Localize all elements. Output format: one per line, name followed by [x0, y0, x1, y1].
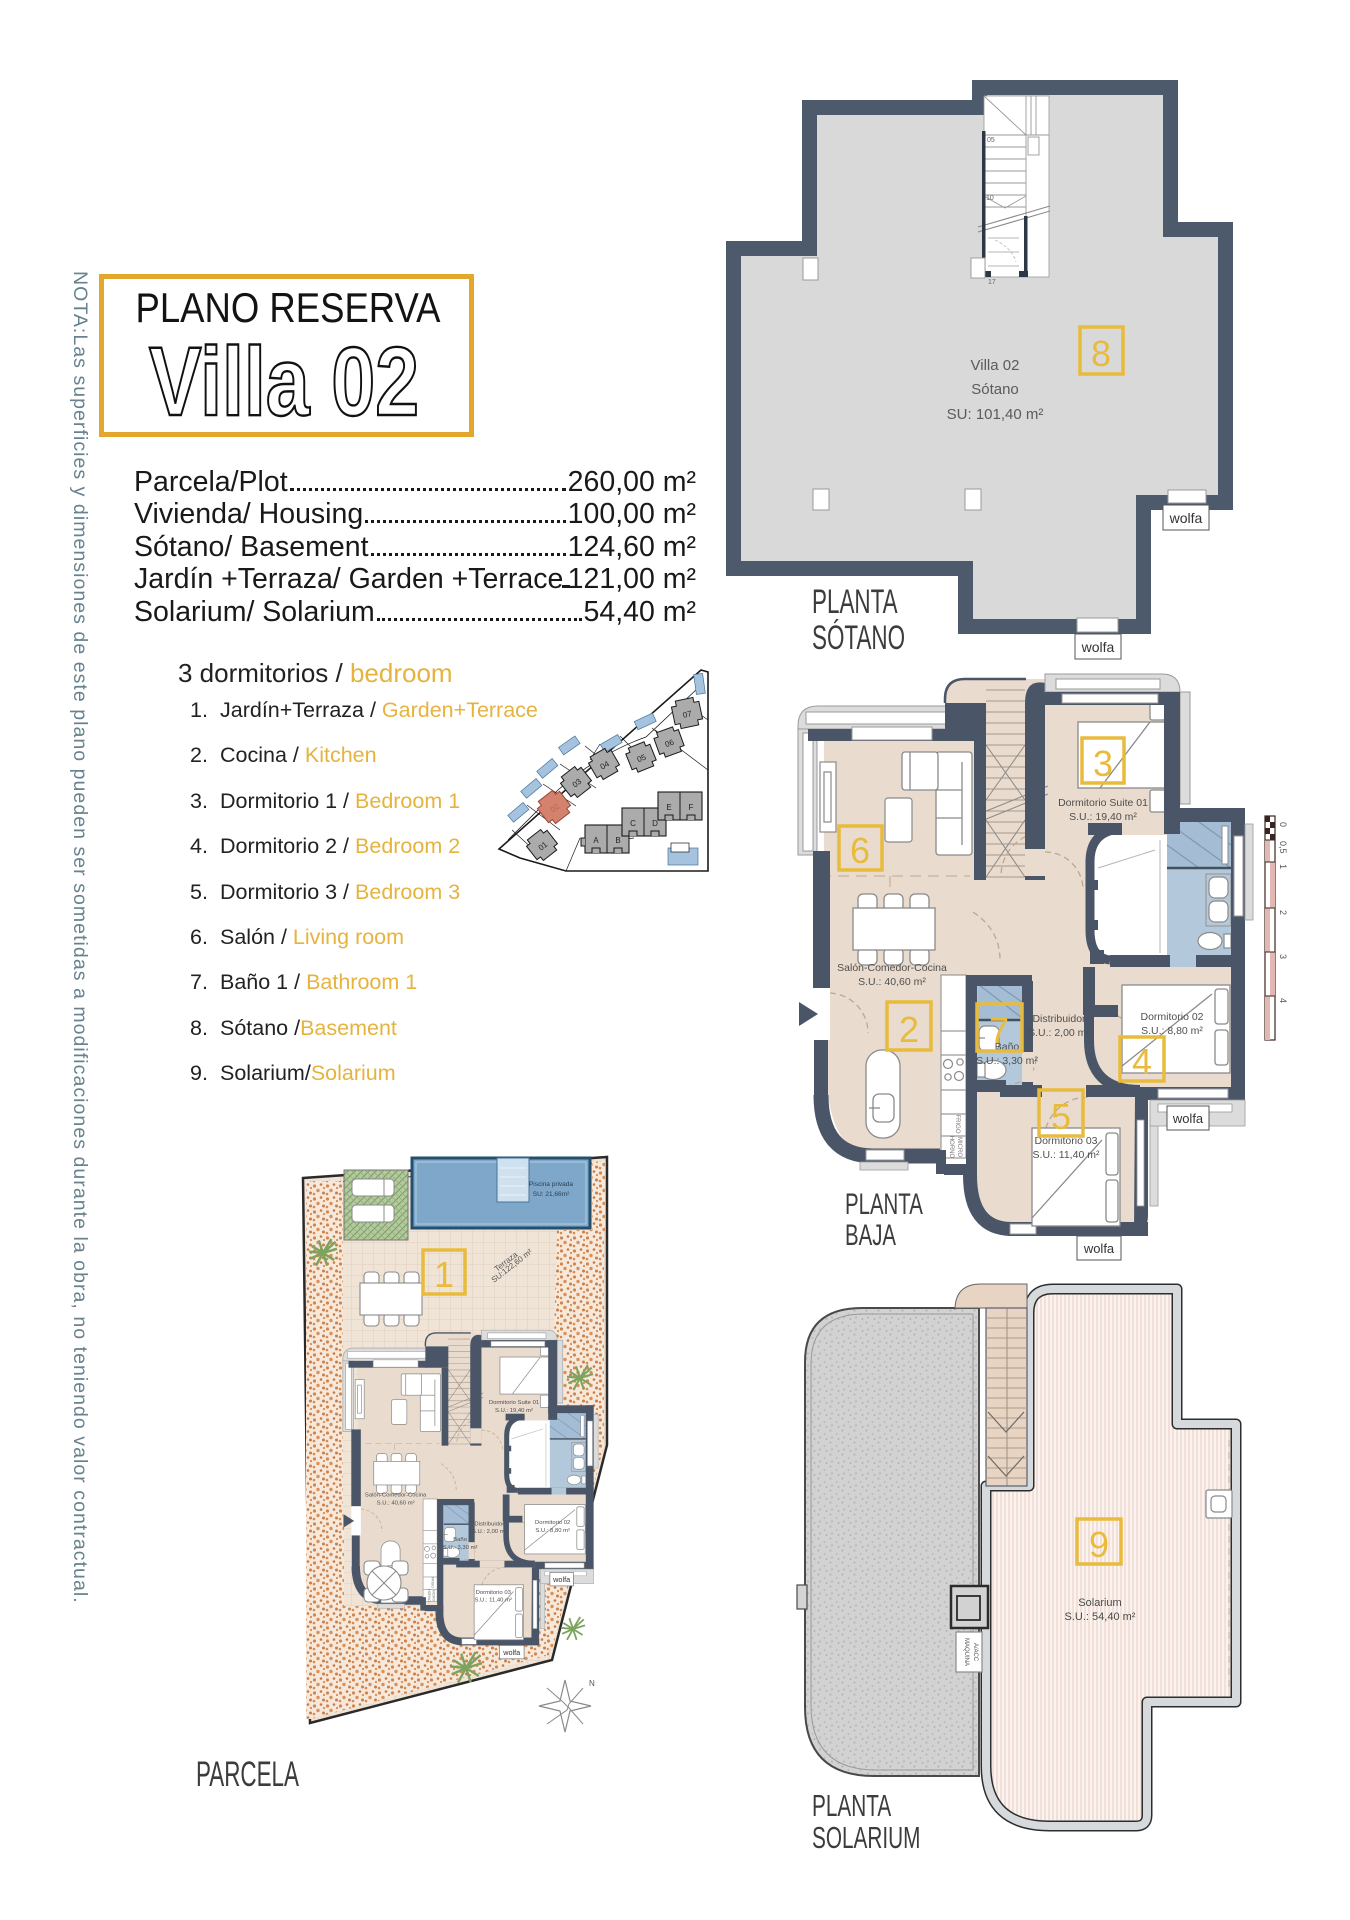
svg-text:1: 1: [1278, 864, 1288, 869]
svg-text:wolfa: wolfa: [1083, 1241, 1115, 1256]
svg-text:8: 8: [1091, 333, 1111, 374]
svg-text:Villa 02: Villa 02: [971, 357, 1020, 374]
svg-text:9: 9: [1089, 1524, 1109, 1565]
svg-text:S.U.: 54,40 m²: S.U.: 54,40 m²: [1065, 1611, 1136, 1623]
svg-text:HORNO: HORNO: [948, 1136, 954, 1159]
svg-text:D: D: [652, 819, 658, 828]
svg-text:MICRO: MICRO: [956, 1137, 962, 1157]
svg-text:Dormitorio 02: Dormitorio 02: [1140, 1011, 1203, 1023]
svg-text:6: 6: [850, 830, 870, 871]
svg-text:2: 2: [1278, 910, 1288, 915]
svg-text:10: 10: [986, 195, 994, 202]
svg-text:A: A: [593, 836, 599, 845]
svg-text:wolfa: wolfa: [1081, 639, 1115, 655]
svg-text:S.U.: 2,00 m²: S.U.: 2,00 m²: [1028, 1027, 1090, 1039]
svg-text:wolfa: wolfa: [1169, 510, 1203, 526]
svg-text:E: E: [666, 803, 671, 812]
svg-text:Sótano: Sótano: [971, 381, 1019, 398]
svg-text:Piscina privada: Piscina privada: [529, 1181, 573, 1188]
svg-text:0: 0: [1278, 822, 1288, 827]
svg-text:MAQUINA: MAQUINA: [963, 1638, 969, 1666]
svg-text:Solarium: Solarium: [1078, 1597, 1121, 1609]
svg-text:S.U.: 40,60 m²: S.U.: 40,60 m²: [858, 976, 926, 988]
svg-text:S.U.: 19,40 m²: S.U.: 19,40 m²: [1069, 811, 1137, 823]
svg-text:Dormitorio Suite 01: Dormitorio Suite 01: [1058, 797, 1148, 809]
svg-text:B: B: [615, 836, 620, 845]
svg-text:Salón-Comedor-Cocina: Salón-Comedor-Cocina: [837, 962, 947, 974]
svg-text:4: 4: [1132, 1041, 1152, 1082]
svg-text:SU: 101,40 m²: SU: 101,40 m²: [947, 406, 1044, 423]
svg-text:2: 2: [899, 1009, 919, 1050]
svg-text:wolfa: wolfa: [1172, 1111, 1204, 1126]
svg-text:FRIGO: FRIGO: [954, 1115, 960, 1134]
svg-text:1: 1: [434, 1254, 454, 1295]
svg-text:S.U.: 8,80 m²: S.U.: 8,80 m²: [1141, 1025, 1203, 1037]
svg-text:7: 7: [989, 1010, 1009, 1051]
svg-text:SU: 21,66m²: SU: 21,66m²: [533, 1191, 570, 1198]
svg-text:0,5: 0,5: [1278, 841, 1288, 854]
svg-text:3: 3: [1093, 743, 1113, 784]
svg-text:N: N: [589, 1679, 595, 1688]
svg-text:S.U.: 3,30 m²: S.U.: 3,30 m²: [976, 1055, 1038, 1067]
svg-text:Distribuidor: Distribuidor: [1032, 1013, 1086, 1025]
svg-text:A/ACC: A/ACC: [972, 1643, 978, 1662]
svg-text:05: 05: [987, 137, 995, 144]
svg-text:5: 5: [1051, 1096, 1071, 1137]
svg-text:C: C: [630, 819, 636, 828]
svg-text:F: F: [689, 803, 694, 812]
svg-text:17: 17: [988, 279, 996, 286]
svg-text:4: 4: [1278, 998, 1288, 1003]
svg-text:3: 3: [1278, 954, 1288, 959]
svg-text:S.U.: 11,40 m²: S.U.: 11,40 m²: [1033, 1149, 1100, 1161]
